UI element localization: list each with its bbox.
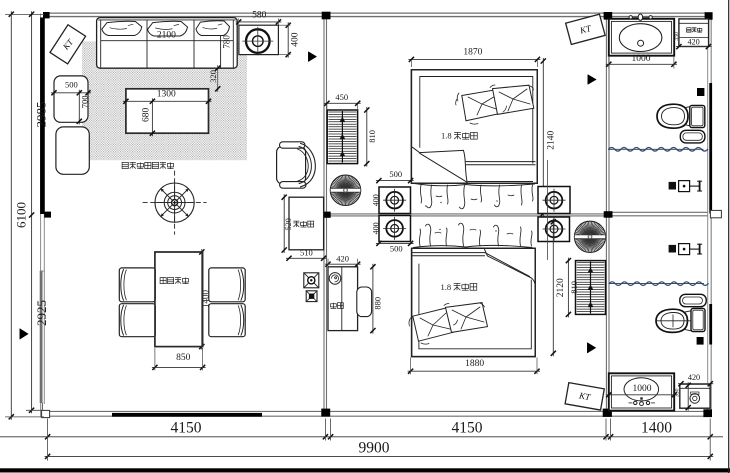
svg-text:700: 700: [79, 96, 89, 109]
svg-text:680: 680: [142, 108, 152, 123]
svg-text:4150: 4150: [452, 420, 483, 437]
svg-text:9900: 9900: [359, 440, 390, 457]
svg-text:420: 420: [688, 373, 700, 382]
svg-text:400: 400: [291, 32, 301, 47]
svg-text:520: 520: [284, 218, 293, 230]
svg-text:320: 320: [208, 70, 218, 83]
svg-text:510: 510: [300, 247, 313, 257]
svg-text:2140: 2140: [546, 131, 556, 150]
svg-text:1870: 1870: [463, 48, 482, 58]
svg-text:2100: 2100: [157, 30, 176, 40]
svg-text:1000: 1000: [633, 384, 652, 394]
svg-text:780: 780: [222, 35, 232, 49]
svg-text:2985: 2985: [34, 102, 49, 128]
svg-text:500: 500: [65, 79, 78, 89]
svg-text:420: 420: [687, 37, 699, 46]
svg-text:350: 350: [674, 32, 680, 41]
svg-text:400: 400: [371, 194, 380, 206]
svg-text:1880: 1880: [465, 359, 484, 369]
svg-text:500: 500: [389, 169, 402, 179]
svg-text:2925: 2925: [34, 300, 49, 326]
svg-text:420: 420: [336, 253, 349, 263]
svg-text:4150: 4150: [171, 420, 202, 437]
svg-text:810: 810: [569, 281, 579, 294]
svg-text:450: 450: [335, 92, 348, 102]
svg-text:1.8: 1.8: [441, 131, 452, 141]
svg-text:1000: 1000: [632, 54, 651, 64]
svg-text:6100: 6100: [14, 202, 29, 228]
svg-text:400: 400: [371, 222, 380, 234]
svg-text:500: 500: [390, 243, 403, 253]
svg-text:880: 880: [372, 297, 382, 310]
svg-text:810: 810: [367, 130, 377, 143]
svg-text:2120: 2120: [556, 278, 566, 297]
svg-text:580: 580: [252, 11, 267, 21]
svg-text:1300: 1300: [157, 90, 176, 100]
svg-text:1400: 1400: [641, 420, 672, 437]
svg-text:1.8: 1.8: [440, 282, 451, 292]
svg-text:850: 850: [176, 353, 191, 363]
